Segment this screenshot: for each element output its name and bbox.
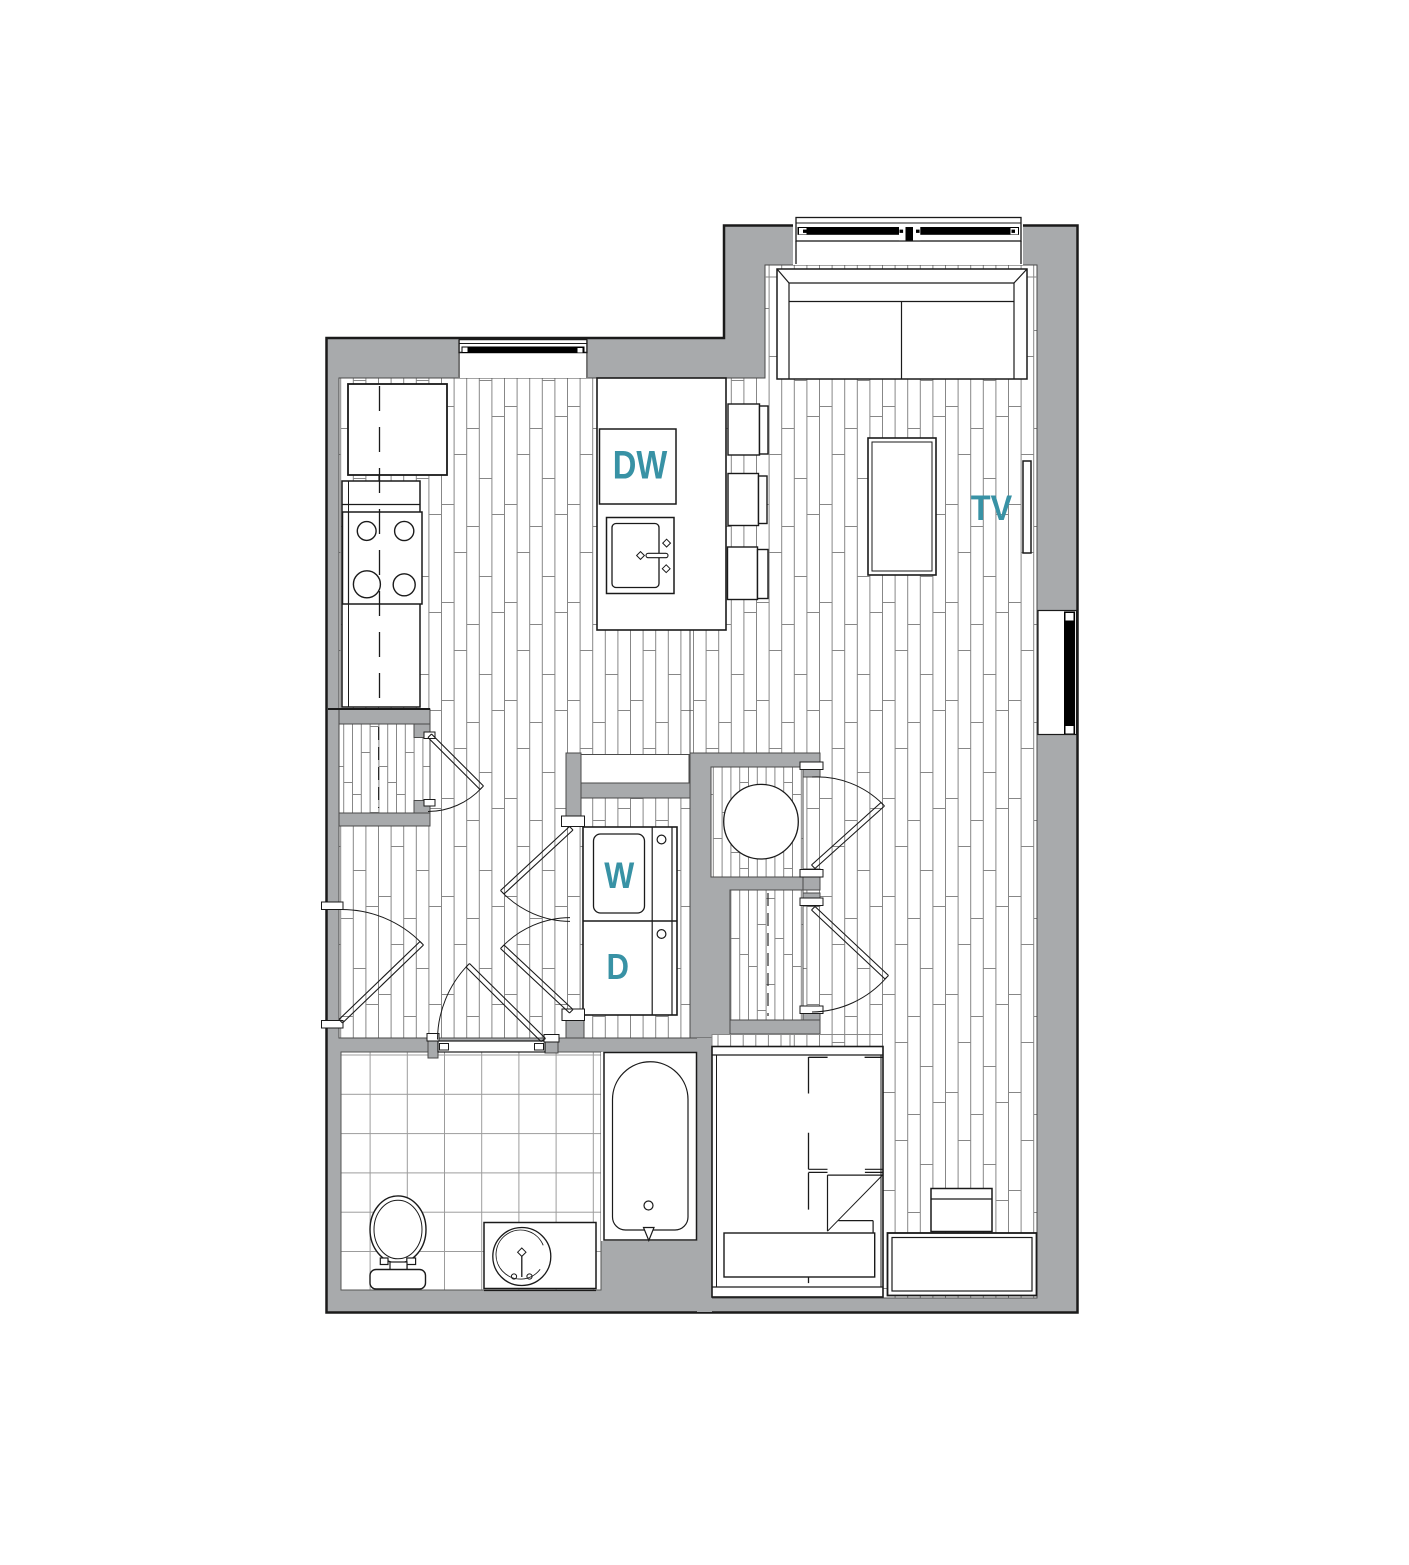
svg-text:W: W xyxy=(604,855,634,896)
svg-text:TV: TV xyxy=(971,489,1013,528)
svg-text:DW: DW xyxy=(613,444,668,488)
svg-text:D: D xyxy=(607,946,630,987)
